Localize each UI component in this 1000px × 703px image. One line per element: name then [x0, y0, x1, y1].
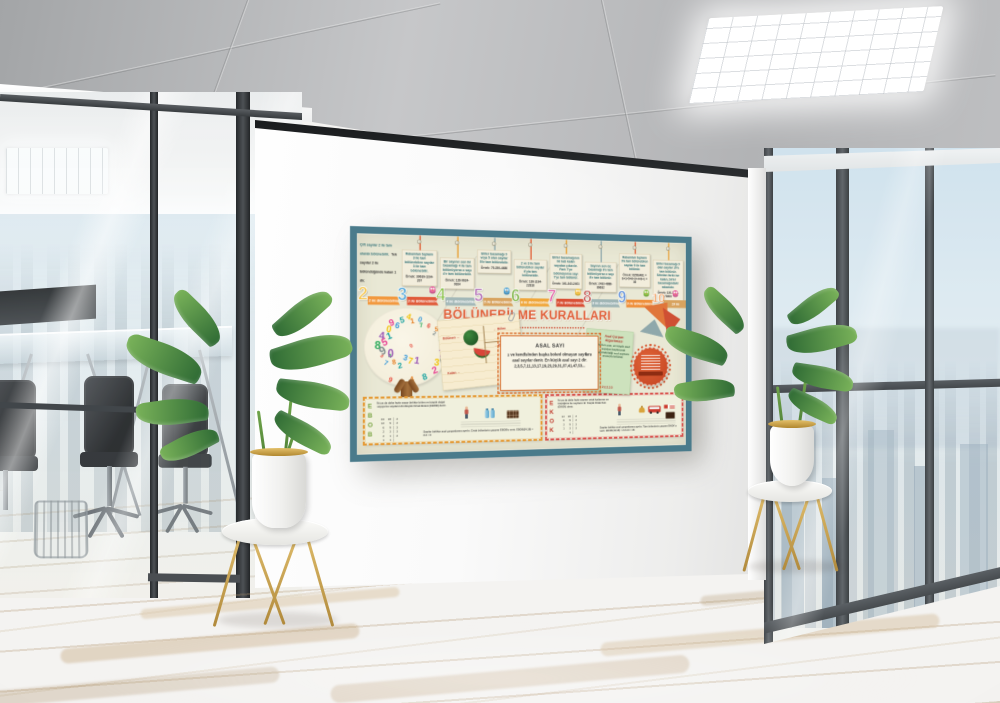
ekok-definition: İki ya da daha fazla sayının ortak katla… — [558, 398, 614, 409]
rule-2-text: Çift sayılar 2 ile tam olarak bölünebili… — [360, 239, 399, 285]
ceiling-light-icon — [688, 6, 943, 104]
bus-icon — [648, 406, 661, 413]
card-text: Rakamları toplamı 3 ile tam bölünebilen … — [404, 252, 435, 273]
ekok-ladder: 12 18 │ 2 6 9 │ 2 3 9 │ 3 1 3 │ 3 1 │ — [561, 415, 576, 435]
divisibility-rules-poster: Çift sayılar 2 ile tam olarak bölünebili… — [350, 226, 692, 462]
ebob-definition: İki ya da daha fazla sayıyı birlikte böl… — [377, 401, 449, 409]
tree-digit: 1 — [413, 355, 420, 367]
badge-text-lines — [641, 355, 660, 371]
chocolate-icon — [507, 410, 519, 418]
card-example: Örnek: 81563481 = 8+1+5+6+3+4+8+1 = 36 — [621, 274, 648, 285]
ekok-example: Sayılar birlikte asal çarpanlarına ayrıl… — [600, 425, 680, 433]
watermelon-icon — [463, 329, 479, 346]
ceiling-seam — [0, 2, 440, 98]
ceiling-seam — [599, 0, 640, 177]
card-example: Örnek: 128-9624-9924 — [442, 279, 472, 287]
card-text: Birler basamağı 0 olan sayılar 10'a tam … — [655, 262, 681, 290]
caption-smudge — [461, 421, 521, 428]
rule-2-line1: Çift sayılar 2 ile tam olarak bölünebili… — [360, 243, 392, 256]
card-text: 2 ve 3 ile tam bölünebilen sayılar 6'yla… — [516, 262, 545, 279]
ekok-panel: E K O K İki ya da daha fazla sayının ort… — [546, 393, 683, 440]
ebob-example: Sayılar birlikte asal çarpanlarına ayrıl… — [423, 428, 534, 438]
note-text: Verilen sayı, en küçük asal sayıdan başl… — [597, 344, 630, 361]
person-icon — [617, 404, 622, 416]
note-title: Asal Çarpan Algoritması — [598, 333, 631, 344]
tree-digit: 6 — [394, 321, 401, 332]
flag-icon — [670, 405, 675, 409]
ebob-letters: E B O B — [368, 402, 373, 440]
card-example: Örnek: 138-1194-22818 — [516, 280, 545, 288]
ebob-ladder: 24 18 │ 2 12 9 │ 2 6 9 │ 3 2 3 │ 3 2 1 │… — [381, 418, 398, 443]
poster-frame: Çift sayılar 2 ile tam olarak bölünebili… — [350, 226, 692, 462]
plant-pot — [252, 452, 306, 528]
card-example: Örnek: 39639-1194-207 — [404, 275, 435, 283]
prime-title: ASAL SAYI — [506, 343, 592, 349]
card-text: Bir sayının son iki basamağı 4 ile tam b… — [442, 260, 472, 277]
person-icon — [464, 406, 470, 419]
water-jug-icon — [491, 410, 495, 418]
pot-rim — [768, 420, 816, 428]
tree-digit: 2 — [432, 331, 437, 338]
pot-rim — [250, 448, 308, 456]
prime-text: 1 ve kendisinden başka böleni olmayan sa… — [506, 352, 592, 369]
rule-card-5: Birler basamağı 0 veya 5 olan sayılar 5'… — [477, 249, 511, 273]
tree-digit: 2 — [397, 361, 403, 371]
plant-pot — [770, 424, 814, 486]
card-text: Birler basamağı 0 veya 5 olan sayılar 5'… — [479, 252, 508, 265]
tree-crown: 0741852963074185296307418529630741 — [364, 307, 449, 387]
rule-2-line2: Tek sayılar 2 ile bölündüğünde kalan 1 d… — [360, 253, 397, 283]
watermelon-slice-icon — [473, 348, 491, 359]
card-example: Örnek: 75-250-4680 — [479, 267, 508, 271]
rule-card-7: Birler basamağının iki katı kalan sayıda… — [550, 253, 582, 289]
prime-number-box: ASAL SAYI 1 ve kendisinden başka böleni … — [500, 335, 598, 391]
ebob-panel: E B O B İki ya da daha fazla sayıyı birl… — [364, 395, 542, 444]
label-remainder: Kalan → — [448, 371, 461, 376]
tree-digit: 8 — [421, 371, 429, 382]
seal-badge-icon — [630, 344, 671, 389]
tree-digit: 7 — [419, 321, 423, 329]
label-divisor: ← Bölen — [493, 327, 506, 331]
flag-icon — [664, 405, 669, 409]
tree-digit: 9 — [387, 375, 393, 384]
tree-digit: 6 — [426, 322, 432, 330]
tree-digit: 0 — [408, 343, 413, 350]
tree-digit: 0 — [388, 347, 394, 360]
card-text: Rakamları toplamı 9'a tam bölünebilen sa… — [621, 256, 648, 272]
label-dividend: Bölünen → — [443, 336, 460, 341]
ekok-letters: E K O K — [550, 399, 554, 435]
badge-band — [639, 371, 663, 375]
rule-card-3: Rakamları toplamı 3 ile tam bölünebilen … — [402, 249, 437, 286]
water-jug-icon — [485, 410, 489, 418]
card-text: Birler basamağının iki katı kalan sayıda… — [552, 256, 580, 281]
tree-digit: 3 — [433, 357, 440, 369]
bell-icon — [639, 407, 645, 413]
rule-card-9: Rakamları toplamı 9'a tam bölünebilen sa… — [619, 253, 650, 287]
caption-smudge — [617, 418, 676, 424]
card-text: Sayının son üç basamağı 8'e tam bölünüyo… — [587, 264, 615, 280]
tree-digit: 1 — [409, 317, 414, 326]
office-scene: Çift sayılar 2 ile tam olarak bölünebili… — [0, 0, 1000, 703]
